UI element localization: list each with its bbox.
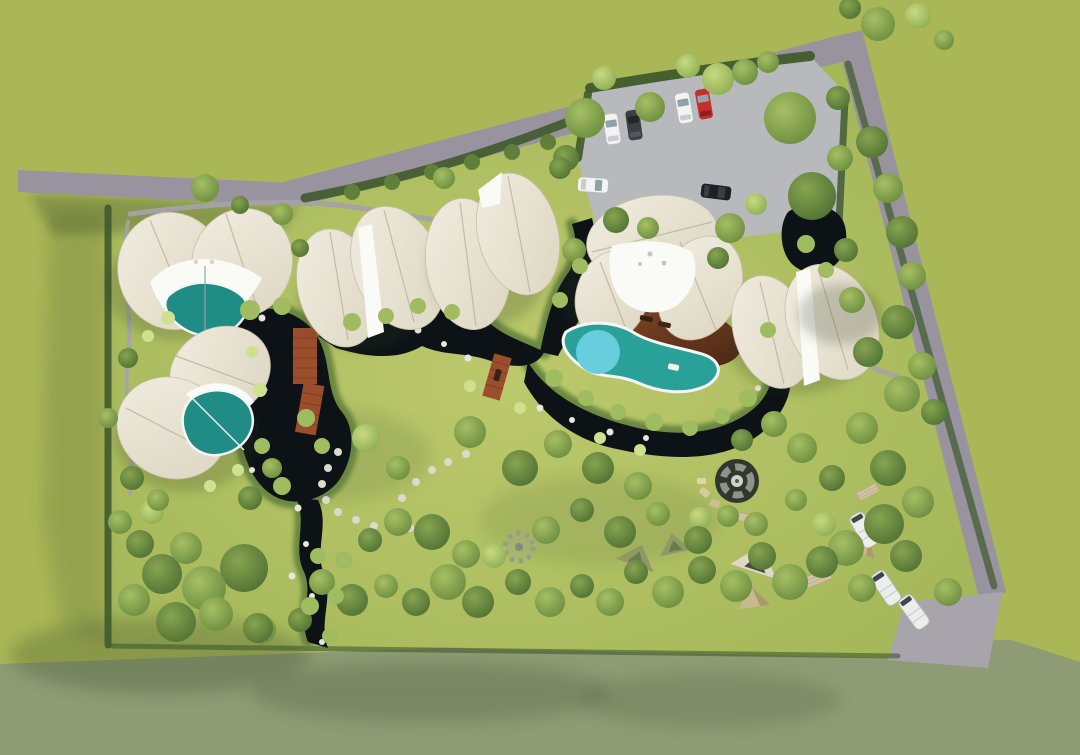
stone-circle (505, 533, 533, 561)
rendering-canvas (0, 0, 1080, 755)
pool-shallow-end (576, 330, 620, 374)
site-plan-rendering (0, 0, 1080, 755)
car-white-3 (578, 177, 609, 193)
